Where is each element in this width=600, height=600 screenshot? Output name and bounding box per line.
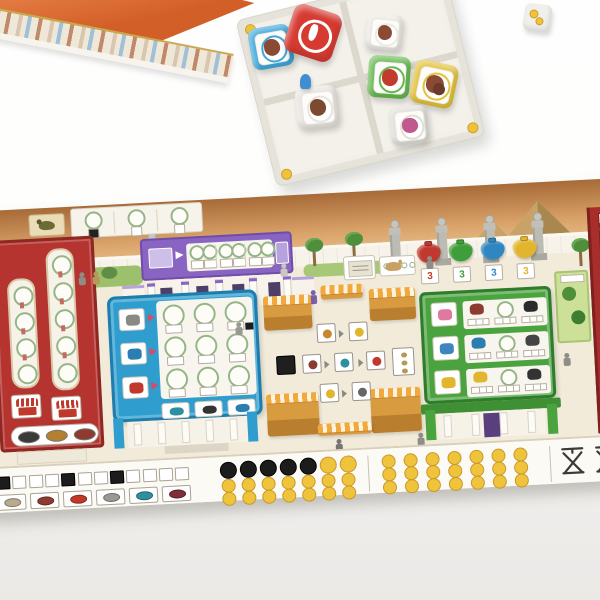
black-token bbox=[299, 457, 317, 475]
scales-icon bbox=[593, 443, 600, 474]
brown-animal-icon bbox=[370, 18, 401, 49]
white-die-top bbox=[364, 12, 404, 52]
market-cell bbox=[348, 321, 368, 341]
goods-oval-row bbox=[10, 423, 99, 448]
camel-icon bbox=[385, 259, 404, 272]
stall-awning bbox=[369, 287, 415, 299]
palace-column bbox=[471, 414, 480, 436]
coin-icon bbox=[319, 456, 337, 474]
market-cell bbox=[316, 323, 336, 343]
green-row-icon-tile bbox=[430, 302, 457, 327]
price-track: 3 bbox=[453, 266, 472, 283]
palace-door bbox=[483, 413, 500, 438]
yellow-die bbox=[408, 58, 460, 110]
red-building-left bbox=[0, 236, 104, 453]
arrow-icon bbox=[342, 390, 347, 398]
goods-oval-icon bbox=[18, 431, 41, 444]
score-box bbox=[196, 322, 213, 332]
brown-animal-icon bbox=[300, 90, 335, 125]
awning-icon bbox=[16, 398, 38, 407]
green-row-panel bbox=[466, 365, 551, 397]
black-token bbox=[279, 458, 297, 476]
palace-column bbox=[133, 423, 142, 445]
strip-divider bbox=[549, 446, 552, 482]
palace-column bbox=[499, 412, 508, 434]
score-circle bbox=[260, 241, 276, 257]
goods-tile bbox=[0, 493, 27, 510]
green-pillar bbox=[425, 410, 437, 440]
score-box bbox=[230, 385, 247, 395]
token-grid bbox=[219, 455, 361, 502]
palace-column bbox=[157, 422, 166, 444]
score-box bbox=[131, 226, 143, 237]
goods-icon bbox=[469, 303, 484, 315]
arrow-icon bbox=[324, 360, 329, 368]
goods-track bbox=[496, 351, 518, 359]
arrow-icon bbox=[151, 381, 158, 389]
goods-track bbox=[467, 318, 489, 326]
market-side-tile bbox=[392, 347, 415, 376]
meeple bbox=[77, 272, 87, 285]
goods-tile-icon bbox=[103, 493, 120, 503]
green-row-icon bbox=[440, 343, 455, 355]
coin-icon bbox=[405, 479, 420, 494]
stall-awning bbox=[318, 421, 372, 434]
score-box bbox=[191, 260, 204, 270]
market-stall bbox=[320, 284, 363, 300]
blue-row-icon bbox=[126, 314, 141, 326]
amphora-icon bbox=[290, 10, 335, 55]
meeple bbox=[91, 271, 101, 284]
green-row-icon bbox=[441, 377, 456, 389]
red-score-track bbox=[45, 248, 80, 391]
goods-track bbox=[521, 315, 543, 323]
market-cell bbox=[366, 350, 386, 370]
goods-tile-icon bbox=[70, 494, 87, 504]
coin-icon bbox=[222, 491, 237, 506]
coin-icon bbox=[242, 490, 257, 505]
pink-goods-icon bbox=[394, 110, 426, 142]
goods-track bbox=[523, 349, 545, 357]
blue-row-icon-tile bbox=[120, 342, 147, 365]
price-value: 3 bbox=[459, 269, 465, 280]
market-cell bbox=[319, 383, 339, 403]
black-token bbox=[259, 459, 277, 477]
blue-row-icon-tile bbox=[122, 376, 149, 399]
turn-track-cell bbox=[94, 471, 109, 485]
market-cell-icon bbox=[340, 358, 349, 367]
score-box bbox=[229, 353, 246, 363]
coin-icon bbox=[471, 475, 486, 490]
stall-front bbox=[267, 418, 320, 437]
market-cell-icon bbox=[355, 328, 364, 337]
goods-tile-icon bbox=[37, 496, 54, 506]
temple-end-icon bbox=[275, 241, 289, 264]
blue-pillar bbox=[113, 418, 125, 448]
palace-column bbox=[443, 415, 452, 437]
coin-icon bbox=[262, 489, 277, 504]
coin-icon bbox=[322, 486, 337, 501]
market-cell bbox=[334, 352, 354, 372]
garden-tile bbox=[554, 270, 592, 344]
score-box bbox=[249, 257, 262, 267]
coin-grid bbox=[381, 446, 543, 494]
turn-track-cell bbox=[61, 473, 76, 487]
turn-track-cell bbox=[110, 470, 125, 484]
market-cell-filled bbox=[276, 355, 296, 375]
goods-bag-icon bbox=[448, 242, 473, 262]
stall-bonus-tile bbox=[11, 394, 42, 420]
score-circle bbox=[17, 364, 38, 385]
scroll-tile bbox=[343, 255, 376, 281]
goods-oval-icon bbox=[46, 429, 69, 442]
market-cell bbox=[302, 354, 322, 374]
blue-row-icon-tile bbox=[118, 308, 145, 331]
gray-die bbox=[388, 104, 430, 146]
goods-track bbox=[471, 386, 493, 394]
market-stall bbox=[369, 287, 417, 321]
goods-tile bbox=[63, 490, 93, 507]
goods-track bbox=[498, 384, 520, 392]
red-score-track bbox=[7, 278, 41, 389]
board-game-photo: 3333 bbox=[0, 0, 600, 600]
blue-pillar bbox=[247, 411, 259, 441]
turn-track-cell bbox=[126, 469, 141, 483]
market-stall bbox=[318, 421, 373, 436]
black-token bbox=[239, 460, 257, 478]
palace-column bbox=[229, 418, 238, 440]
scales-icon bbox=[559, 445, 587, 476]
meeple bbox=[425, 256, 435, 269]
dice-layer bbox=[0, 0, 600, 220]
price-track: 3 bbox=[421, 268, 440, 285]
score-box bbox=[167, 356, 184, 366]
market-cell-cluster bbox=[292, 318, 426, 411]
arrow-icon bbox=[148, 313, 155, 321]
coin-icon bbox=[282, 488, 297, 503]
goods-icon bbox=[471, 337, 486, 349]
coin-icon bbox=[514, 473, 529, 488]
arrow-icon bbox=[149, 347, 156, 355]
brown-goods-pair-icon bbox=[415, 65, 455, 105]
temple-score-panel bbox=[186, 239, 273, 271]
goods-icon bbox=[473, 371, 488, 383]
turn-track-cell bbox=[45, 474, 60, 488]
score-box bbox=[220, 258, 233, 268]
turn-track-cell bbox=[142, 469, 157, 483]
palace-column bbox=[527, 411, 536, 433]
goods-icon bbox=[525, 334, 540, 346]
turn-track-cell bbox=[175, 467, 190, 481]
score-circle bbox=[57, 363, 78, 384]
blue-bottom-icon-tile bbox=[161, 402, 190, 419]
goods-track bbox=[525, 383, 547, 391]
loose-die bbox=[522, 2, 552, 32]
turn-track-cell bbox=[0, 476, 11, 490]
market-cell-icon bbox=[326, 389, 335, 398]
market-cell-icon bbox=[358, 387, 367, 396]
blue-palace bbox=[107, 289, 263, 423]
coin-icon bbox=[339, 455, 357, 473]
market-cell bbox=[351, 381, 371, 401]
turn-track-cell bbox=[12, 475, 27, 489]
palm-tree-icon bbox=[304, 238, 326, 269]
black-token bbox=[219, 461, 237, 479]
price-track: 3 bbox=[484, 264, 503, 281]
green-die bbox=[367, 55, 412, 100]
market-cell-icon bbox=[323, 329, 332, 338]
green-row-icon bbox=[438, 309, 453, 321]
white-die-mid bbox=[294, 84, 340, 130]
coin-icon bbox=[427, 478, 442, 493]
goods-tile bbox=[129, 487, 159, 504]
arrow-icon bbox=[175, 251, 183, 259]
temple-bonus-icon bbox=[148, 247, 173, 268]
green-row-panel bbox=[464, 331, 549, 363]
blue-row-icon bbox=[129, 382, 144, 394]
meeple bbox=[562, 353, 572, 366]
score-box bbox=[165, 324, 182, 334]
meeple bbox=[279, 263, 289, 276]
goods-tile bbox=[96, 488, 126, 505]
awning-icon bbox=[56, 400, 78, 409]
coin-icon bbox=[449, 477, 464, 492]
goods-icon bbox=[527, 368, 542, 380]
turn-track-cell bbox=[77, 472, 92, 486]
price-value: 3 bbox=[523, 266, 529, 277]
garden-score-strip bbox=[560, 274, 584, 283]
goods-track bbox=[494, 317, 516, 325]
goods-tile-icon bbox=[136, 491, 153, 501]
stall-front bbox=[371, 414, 422, 433]
palace-column bbox=[205, 420, 214, 442]
blue-bottom-icon bbox=[170, 407, 184, 416]
stall-bonus-tile bbox=[51, 395, 82, 421]
grid-mark bbox=[245, 322, 253, 329]
meeple bbox=[234, 322, 244, 335]
goods-tile-icon bbox=[169, 489, 186, 499]
tree-icon bbox=[571, 310, 586, 325]
score-box bbox=[262, 256, 275, 266]
score-box bbox=[174, 224, 186, 235]
market-cell-icon bbox=[372, 357, 381, 366]
blue-row-icon bbox=[127, 348, 142, 360]
goods-tile bbox=[30, 492, 60, 509]
green-row-icon-tile bbox=[432, 336, 459, 361]
mini-circle bbox=[409, 262, 415, 268]
price-value: 3 bbox=[491, 268, 497, 279]
red-produce-icon bbox=[373, 61, 407, 95]
green-palace bbox=[419, 286, 557, 405]
coin-icon bbox=[383, 480, 398, 495]
market-cell-icon bbox=[308, 360, 317, 369]
green-row-panel bbox=[462, 297, 547, 329]
tree-icon bbox=[562, 286, 577, 301]
coin-icon bbox=[492, 474, 507, 489]
goods-tile bbox=[162, 485, 192, 502]
palace-column bbox=[181, 421, 190, 443]
goods-tile-icon bbox=[4, 498, 21, 508]
coin-icon bbox=[302, 487, 317, 502]
coin-icon bbox=[342, 485, 357, 500]
blue-bottom-icon-tile bbox=[194, 400, 223, 417]
score-box bbox=[198, 354, 215, 364]
green-pillar bbox=[547, 404, 559, 434]
turn-track-cell bbox=[159, 468, 174, 482]
blue-score-grid bbox=[156, 296, 257, 399]
strip-divider bbox=[367, 455, 370, 491]
gold-coins-icon bbox=[535, 17, 544, 26]
price-track: 3 bbox=[516, 263, 535, 280]
goods-track bbox=[469, 352, 491, 360]
stall-awning bbox=[320, 284, 362, 296]
price-value: 3 bbox=[427, 271, 433, 282]
goods-icon bbox=[523, 300, 538, 312]
arrow-icon bbox=[358, 359, 363, 367]
blue-pawn bbox=[300, 74, 311, 89]
game-board: 3333 bbox=[0, 178, 600, 514]
turn-track-cell bbox=[28, 475, 43, 489]
blue-bottom-icon bbox=[202, 405, 216, 414]
score-box bbox=[169, 388, 186, 398]
stall-awning bbox=[263, 294, 311, 306]
arrow-icon bbox=[339, 330, 344, 338]
green-row-icon-tile bbox=[434, 370, 461, 395]
score-box bbox=[199, 386, 216, 396]
goods-oval-icon bbox=[73, 428, 96, 441]
